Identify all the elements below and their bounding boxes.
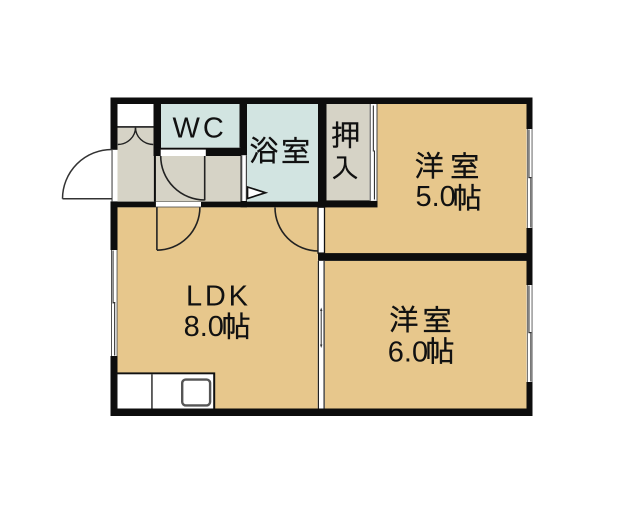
svg-text:WC: WC: [173, 113, 227, 145]
svg-text:6.0: 6.0: [388, 337, 428, 369]
svg-text:5.0: 5.0: [416, 181, 456, 213]
svg-text:LDK: LDK: [186, 280, 251, 312]
svg-text:8.0: 8.0: [184, 311, 224, 343]
